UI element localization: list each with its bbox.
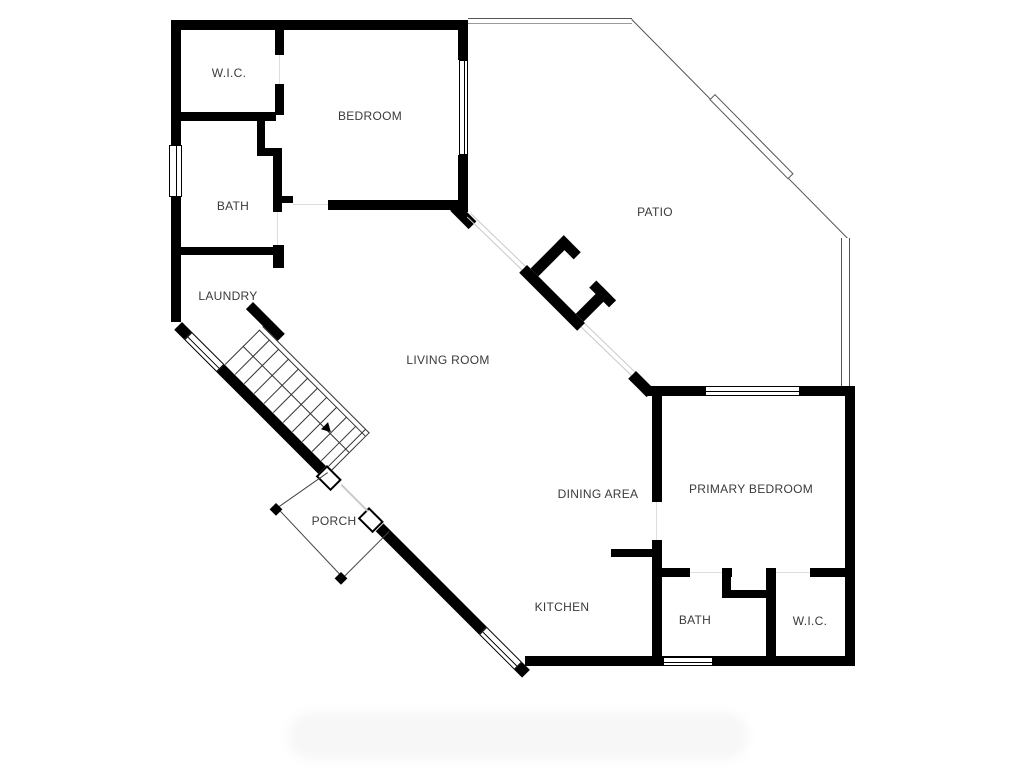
- wall-bedroom-right-lower: [458, 155, 468, 212]
- exterior-wall-left-upper: [171, 20, 181, 147]
- room-label-bath-lower: BATH: [679, 613, 711, 627]
- wall-bath-wic-divider: [766, 568, 776, 666]
- wall-bath-top: [652, 568, 690, 577]
- room-label-bedroom: BEDROOM: [338, 109, 402, 123]
- wall-bath-laundry: [176, 247, 284, 255]
- exterior-wall-top: [171, 20, 468, 30]
- door-opening: [293, 204, 328, 205]
- room-label-wic-lower: W.I.C.: [793, 614, 827, 628]
- room-label-bath-upper: BATH: [217, 199, 249, 213]
- porch-edge: [277, 472, 328, 508]
- wall-stub: [281, 196, 293, 203]
- window: [184, 332, 224, 372]
- window-pane-line: [188, 336, 220, 368]
- window: [663, 657, 713, 666]
- room-label-dining-area: DINING AREA: [558, 487, 639, 501]
- exterior-wall-left-lower: [171, 195, 181, 322]
- porch-edge: [343, 531, 390, 578]
- wall-wic-bedroom-lower: [275, 84, 284, 115]
- wall-dining-stub: [611, 549, 656, 557]
- room-label-patio: PATIO: [637, 205, 673, 219]
- wall-bedroom-right-upper: [458, 20, 468, 60]
- door-opening: [690, 572, 722, 573]
- exterior-wall-right: [845, 388, 855, 666]
- patio-edge-top: [468, 18, 632, 24]
- stair-direction-arrow-icon: [321, 422, 334, 435]
- window-pane-line: [176, 146, 177, 196]
- wall-wic-top: [810, 568, 848, 577]
- patio-railing-diagonal: [709, 94, 793, 179]
- wall-segment: [376, 524, 487, 635]
- window: [169, 145, 182, 197]
- door-opening: [341, 484, 369, 512]
- door-opening: [776, 572, 810, 573]
- room-label-porch: PORCH: [312, 514, 357, 528]
- window-pane-line: [706, 391, 799, 392]
- wall-wic-bedroom-upper: [275, 28, 284, 55]
- wall-bedroom-bottom: [328, 200, 468, 210]
- room-label-living-room: LIVING ROOM: [406, 353, 489, 367]
- wall-primary-top-right: [800, 386, 855, 396]
- window: [479, 627, 522, 670]
- door-opening: [277, 212, 278, 245]
- patio-railing-right: [841, 238, 850, 389]
- watermark: [288, 712, 748, 760]
- wall-primary-left-upper: [652, 392, 662, 502]
- room-label-laundry: LAUNDRY: [198, 289, 257, 303]
- window-pane-line: [664, 662, 712, 663]
- door-opening: [656, 502, 657, 540]
- room-label-primary-bedroom: PRIMARY BEDROOM: [689, 482, 813, 496]
- door-opening: [279, 55, 280, 84]
- window-pane-line: [464, 61, 465, 154]
- wall-kitchen-bath: [652, 540, 662, 666]
- floor-plan: W.I.C. BEDROOM BATH LAUNDRY PATIO LIVING…: [0, 0, 1024, 768]
- room-label-wic-upper: W.I.C.: [212, 66, 246, 80]
- window-pane-line: [483, 631, 518, 666]
- window: [459, 60, 468, 155]
- door-frame-bar: [519, 265, 585, 331]
- room-label-kitchen: KITCHEN: [535, 600, 590, 614]
- window: [705, 386, 800, 396]
